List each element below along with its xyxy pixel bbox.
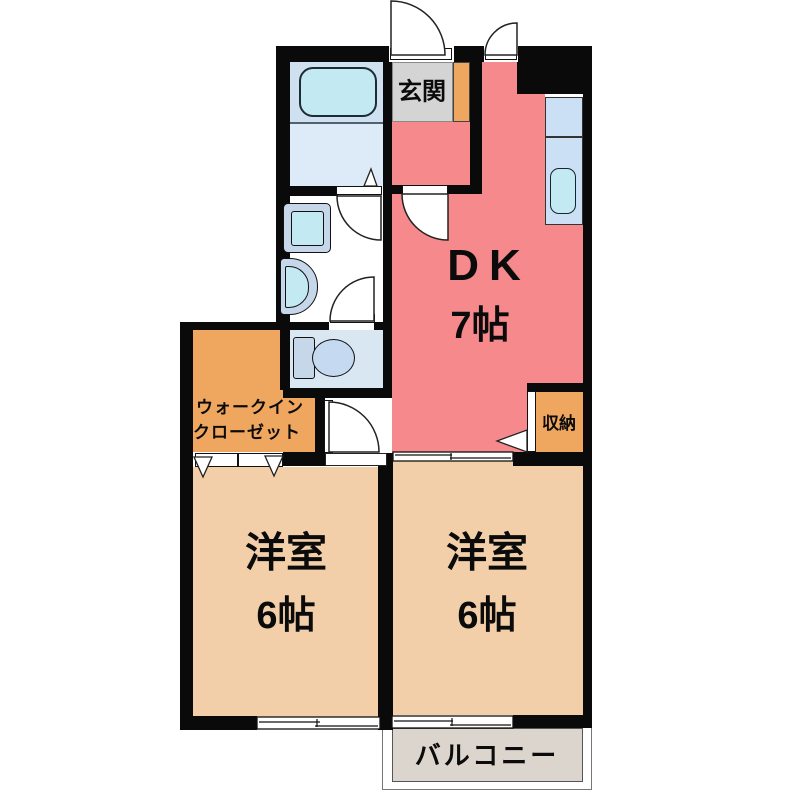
walkin-closet-label-line1: ウォークイン xyxy=(196,399,304,417)
dk-room-area xyxy=(392,385,527,453)
wall-toilet-bottom xyxy=(283,388,392,398)
dk-size-label: 7帖 xyxy=(450,307,509,347)
closet-sliding-panel xyxy=(238,453,283,467)
toilet-door-leaf xyxy=(330,314,375,323)
closet-sliding-panel xyxy=(195,453,238,467)
wall-toilet-top xyxy=(374,322,392,330)
bedroom-right-label: 洋室 xyxy=(446,531,528,574)
entrance-door-leaf xyxy=(390,48,452,60)
window-bedroom-left xyxy=(257,717,380,729)
wall-hall-bottom xyxy=(448,185,482,194)
wall-storage-top xyxy=(527,383,592,392)
wall-bedroom-left-bottom xyxy=(180,716,257,730)
bathroom-divider-line xyxy=(290,122,383,124)
wall-block-top-right xyxy=(517,52,592,94)
washroom-door-arc xyxy=(337,196,381,240)
wall-closet-top xyxy=(180,322,290,330)
walkin-closet-label-line2: クローゼット xyxy=(193,424,301,442)
washroom-door-leaf xyxy=(336,186,382,195)
genkan-step xyxy=(453,62,470,122)
bathroom-floor-area xyxy=(290,123,383,186)
wall-bath-washroom xyxy=(278,186,338,196)
wall-between-bedrooms xyxy=(378,453,393,730)
sliding-door-dk-bedroom xyxy=(393,452,513,461)
bedroom-right-size-label: 6帖 xyxy=(457,597,516,637)
genkan-label: 玄関 xyxy=(398,79,446,104)
storage-door-leaf xyxy=(527,391,536,452)
dk-label: DK xyxy=(447,243,531,289)
washing-machine xyxy=(291,211,324,246)
side-door-leaf xyxy=(485,48,517,60)
storage-label: 収納 xyxy=(542,415,576,433)
bedroom-door-leaf xyxy=(324,400,333,453)
wall-closet-toilet xyxy=(280,330,290,390)
hall-dk-door-leaf xyxy=(402,185,448,195)
kitchen-counter-divider xyxy=(545,136,583,138)
bedroom-door-threshold xyxy=(325,453,387,466)
toilet-bowl xyxy=(312,339,355,377)
wall-bedroom-right-bottom xyxy=(513,715,592,728)
bedroom-door-swing-zone xyxy=(325,398,387,453)
kitchen-sink xyxy=(550,168,576,214)
bedroom-left-label: 洋室 xyxy=(245,531,327,574)
wall-closet-bedroom xyxy=(283,452,325,466)
wall-genkan-dk xyxy=(470,62,482,193)
wall-left-lower xyxy=(180,322,193,730)
floor-plan: 玄関 DK 7帖 洋室 6帖 洋室 6帖 ウォークイン クローゼット 収納 バル… xyxy=(0,0,800,800)
dk-room-area xyxy=(482,62,517,94)
bedroom-right-area xyxy=(393,461,583,715)
balcony-label: バルコニー xyxy=(415,742,559,769)
bedroom-left-area xyxy=(192,467,378,718)
bedroom-left-size-label: 6帖 xyxy=(256,597,315,637)
wall-dk-bedroom xyxy=(513,452,592,466)
bathtub xyxy=(299,67,377,117)
wall-washroom-hall xyxy=(383,62,392,398)
